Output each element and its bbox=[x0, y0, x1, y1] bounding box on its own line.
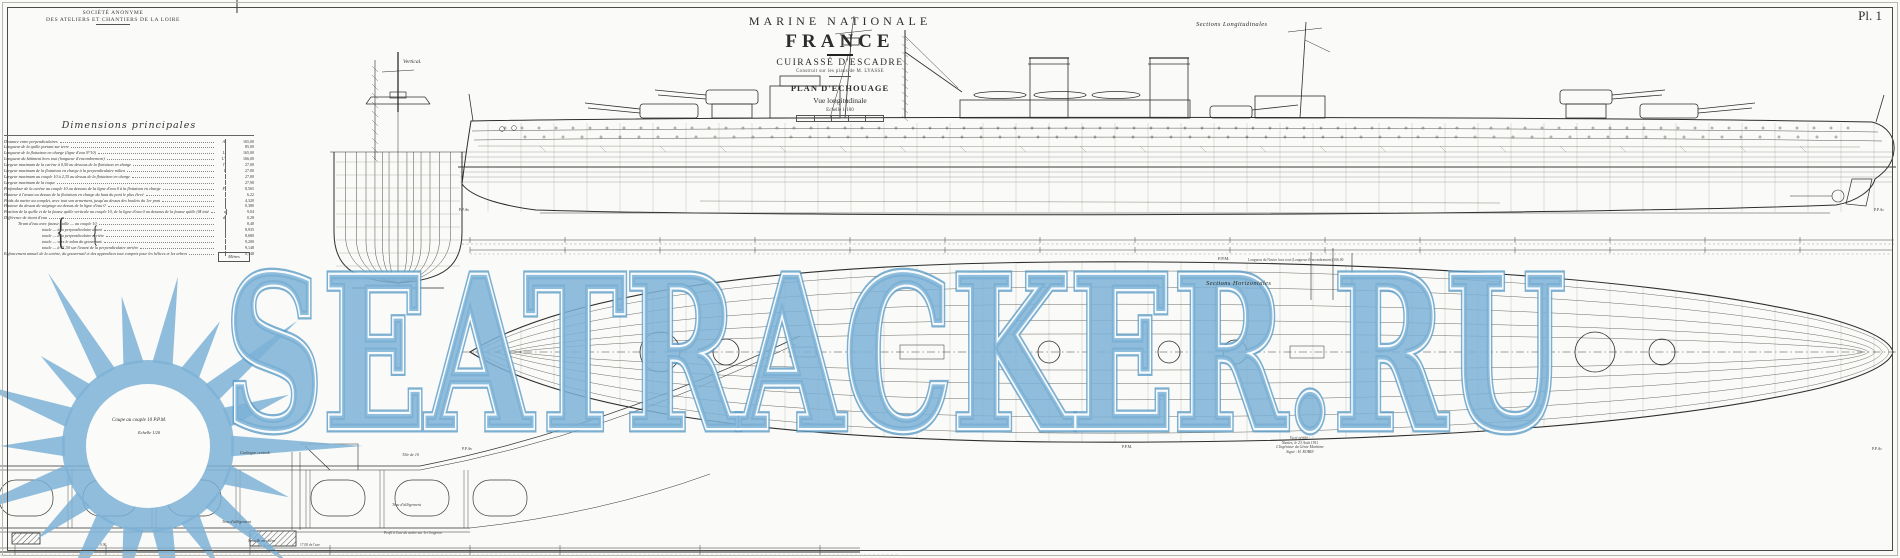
note-trou-2: Trou d'allègement bbox=[392, 502, 421, 507]
title-block: MARINE NATIONALE FRANCE CUIRASSÉ D'ESCAD… bbox=[730, 14, 950, 122]
body-plan-label: Vertical. bbox=[403, 59, 421, 65]
watermark-text: SEATRACKER.RU SEATRACKER.RU SEATRACKER.R… bbox=[225, 231, 1565, 478]
table-brace-outer: { bbox=[56, 212, 66, 256]
pp-ar-profile-label: P.P.Ar bbox=[1874, 207, 1884, 212]
dimensions-table: Dimensions principales Distance entre pe… bbox=[4, 120, 254, 256]
table-brace-inner: { bbox=[92, 220, 98, 250]
table-row: Enfoncement annuel de la carène, du gouv… bbox=[4, 250, 254, 256]
detail-num-1: 0,90 bbox=[100, 543, 106, 547]
company-line2: DES ATELIERS ET CHANTIERS DE LA LOIRE bbox=[28, 17, 198, 24]
service-title: MARINE NATIONALE bbox=[730, 14, 950, 29]
pp-av-plan-label: P.P.Av bbox=[462, 446, 472, 451]
ship-plan-drawing: SEATRACKER.RU SEATRACKER.RU SEATRACKER.R… bbox=[0, 0, 1900, 558]
company-header: SOCIÉTÉ ANONYME DES ATELIERS ET CHANTIER… bbox=[28, 10, 198, 25]
note-rule bbox=[829, 76, 851, 77]
units-box: Mètres bbox=[218, 252, 250, 262]
built-note: Construit sur les plans de M. LYASSE bbox=[730, 69, 950, 74]
note-profil: Profil à l'axe du navire sur 1er longero… bbox=[384, 531, 442, 535]
svg-text:SEATRACKER.RU: SEATRACKER.RU bbox=[225, 231, 1565, 478]
ship-name: FRANCE bbox=[730, 31, 950, 53]
seatracker-watermark: SEATRACKER.RU SEATRACKER.RU SEATRACKER.R… bbox=[0, 231, 1565, 558]
ppm-bottom-label: P.P.M. bbox=[1122, 444, 1132, 449]
company-underline bbox=[96, 24, 130, 25]
detail-title: Coupe au couple 10 P.P.M. bbox=[112, 418, 166, 423]
pp-av-profile-label: P.P.Av bbox=[459, 207, 469, 212]
plan-type: PLAN D'ECHOUAGE bbox=[730, 83, 950, 93]
length-note: Longueur du Navire hors tout (Longueur d… bbox=[1248, 258, 1343, 262]
table-row: Profondeur de la carène au couple 10 au … bbox=[4, 185, 254, 191]
sections-longitudinales-label: Sections Longitudinales bbox=[1196, 21, 1268, 28]
approval-line: Signé : H. ROBIN bbox=[1258, 450, 1342, 455]
sections-horizontales-label: Sections Horizontales bbox=[1206, 280, 1271, 287]
note-tole: Tôle de 10 bbox=[402, 452, 419, 457]
longitudinal-elevation bbox=[458, 16, 1896, 244]
dimensions-table-title: Dimensions principales bbox=[4, 120, 254, 131]
scale-label: Echelle 1/100 bbox=[730, 108, 950, 113]
dimensions-table-rows: Distance entre perpendiculairesA165,00Lo… bbox=[4, 135, 254, 256]
plate-number: Pl. 1 bbox=[1858, 8, 1882, 24]
plan-sheet: SEATRACKER.RU SEATRACKER.RU SEATRACKER.R… bbox=[0, 0, 1900, 558]
note-trou-1: Trou d'allègement bbox=[222, 519, 251, 524]
note-carlingue: Carlingue centrale bbox=[240, 450, 270, 455]
note-semelle: Semelle en chêne bbox=[248, 538, 276, 543]
pp-ar-plan-label: P.P.Ar bbox=[1872, 446, 1882, 451]
ship-type: CUIRASSÉ D'ESCADRE bbox=[730, 58, 950, 68]
detail-scale: Echelle 1/20 bbox=[138, 430, 160, 435]
ship-name-rule bbox=[827, 54, 853, 56]
view-name: Vue longitudinale bbox=[730, 96, 950, 105]
ppm-top-label: P.P.M. bbox=[1218, 256, 1230, 261]
approval-block: Vu et vérifié : Nantes, le 23 Août 1911 … bbox=[1258, 436, 1342, 454]
graphic-scale-bar bbox=[796, 115, 884, 122]
detail-num-2: 17,08 de l'axe bbox=[300, 543, 320, 547]
